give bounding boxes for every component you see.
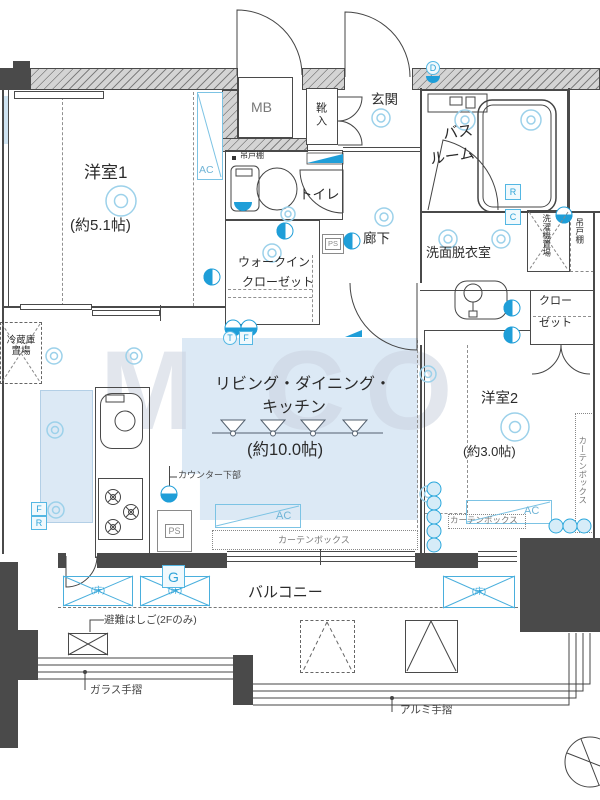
glass-rail-label: ガラス手摺 [90,684,142,696]
badge-r-kitchen: R [31,516,47,530]
badge-t-ldk: T [223,331,237,345]
badge-d: D [426,61,440,75]
curtain-box-label-ldk: カーテンボックス [278,535,350,545]
shoe-box-label: 靴入 [314,102,327,142]
door-arcs [66,10,590,587]
badge-c-bath: C [505,209,521,225]
bedroom1-size: (約5.1帖) [70,217,131,234]
hanging-shelf-label-toilet: 吊戸棚 [240,151,264,160]
counter-lower-label: カウンター下部 [178,470,241,480]
floor-plan: M CO PS [0,0,600,800]
survey-compass [565,737,600,787]
bedroom2-name: 洋室2 [481,391,518,408]
door-arc-shoe-lower [338,121,362,145]
fridge-space-label: 冷蔵庫置場 [3,336,39,358]
closet-name-line2: ゼット [539,317,572,330]
hanging-shelf-dot [232,156,236,160]
toilet-name: トイレ [299,187,340,203]
badge-f-kitchen: F [31,502,47,516]
ac-label-bedroom2: AC [524,505,539,518]
hallway-name: 廊下 [363,231,390,247]
ldk-size: (約10.0帖) [247,441,323,460]
curtain-box-label-right: カーテンボックス [577,436,587,516]
washer-space-label: 洗濯機置場 [541,214,551,270]
outlet-symbols [161,76,572,502]
floor-hatch-box-1: (床) [63,576,133,606]
mb-label: MB [251,99,272,115]
hanging-shelf-label-right: 吊戸棚 [574,218,584,268]
entrance-name: 玄関 [371,92,398,108]
badge-f-ldk: F [239,331,253,345]
door-arc-entrance [345,12,410,77]
ldk-name-line1: リビング・ダイニング・ [215,376,391,394]
glass-railing [38,658,233,679]
badge-g: G [162,565,185,588]
ac-label-ldk: AC [276,510,291,523]
badge-r-bath: R [505,184,521,200]
washroom-name: 洗面脱衣室 [426,246,491,261]
door-arc-closet-right [561,345,590,374]
stove-burners [106,395,139,535]
wic-name-line1: ウォークイン [238,256,310,270]
pendant-lights [212,420,383,436]
floor-hatch-label-1: (床) [91,586,105,596]
closet-name-line1: クロー [539,295,572,308]
toilet-fixture [231,166,297,211]
curtain-box-label-bedroom2: カーテンボックス [450,516,518,526]
escape-hatch-cross [68,633,108,655]
floor-hatch-box-3: (床) [443,576,515,608]
alumi-rail-label: アルミ手摺 [400,704,452,716]
d-badge-disc [426,76,440,83]
door-arc-mb [237,10,302,75]
bedroom2-size: (約3.0帖) [463,445,516,460]
floor-hatch-label-3: (床) [472,587,486,597]
door-arc-ldk [350,283,417,350]
ldk-name-line2: キッチン [262,399,326,417]
balcony-triangles [303,621,456,671]
washbasin-fixture [455,281,507,319]
ac-label-bedroom1: AC [199,164,214,176]
bedroom1-name: 洋室1 [84,163,127,183]
escape-ladder-label: 避難はしご(2Fのみ) [104,614,197,626]
door-arc-closet-left [532,345,561,374]
balcony-name: バルコニー [248,584,323,601]
wic-name-line2: クローゼット [242,276,314,290]
door-arc-shoe-upper [338,97,362,121]
